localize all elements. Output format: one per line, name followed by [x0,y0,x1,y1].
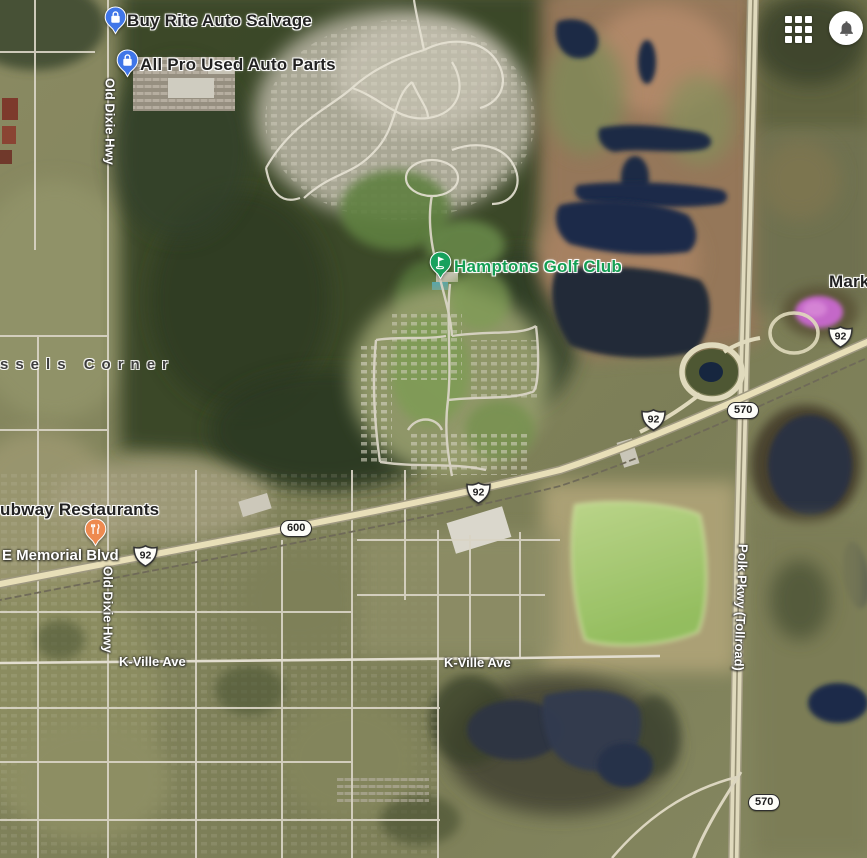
poi-pin-golf[interactable] [429,251,452,280]
road-label: K-Ville Ave [119,654,186,669]
us-route-shield: 92 [827,325,854,349]
state-road-shield: 600 [280,520,312,537]
svg-text:92: 92 [648,414,660,426]
us-route-shield: 92 [465,481,492,505]
svg-text:92: 92 [835,331,847,343]
poi-label[interactable]: Buy Rite Auto Salvage [127,11,312,31]
pin-balloon [430,252,451,279]
us-route-shield: 92 [640,408,667,432]
poi-pin-shopping[interactable] [104,6,127,35]
bell-icon [838,20,855,37]
apps-grid-icon[interactable] [785,16,812,43]
state-road-shield: 570 [748,794,780,811]
map-canvas[interactable]: Buy Rite Auto Salvage All Pro Used Auto … [0,0,867,858]
state-road-shield: 570 [727,402,759,419]
road-label: Old Dixie Hwy [103,76,118,168]
road-label: E Memorial Blvd [2,547,119,564]
poi-label[interactable]: All Pro Used Auto Parts [140,55,336,75]
notifications-button[interactable] [829,11,863,45]
road-label: K-Ville Ave [444,655,511,670]
pin-balloon [85,519,106,546]
svg-text:92: 92 [473,487,485,499]
locality-label: ssels Corner [0,356,175,373]
satellite-imagery [0,0,867,858]
poi-label[interactable]: Marke [829,272,867,292]
poi-pin-shopping[interactable] [116,49,139,78]
poi-pin-restaurant[interactable] [84,518,107,547]
poi-label[interactable]: ubway Restaurants [0,500,159,520]
svg-text:92: 92 [140,550,152,562]
poi-label[interactable]: Hamptons Golf Club [454,257,622,277]
road-label: Old Dixie Hwy [101,564,116,656]
us-route-shield: 92 [132,544,159,568]
